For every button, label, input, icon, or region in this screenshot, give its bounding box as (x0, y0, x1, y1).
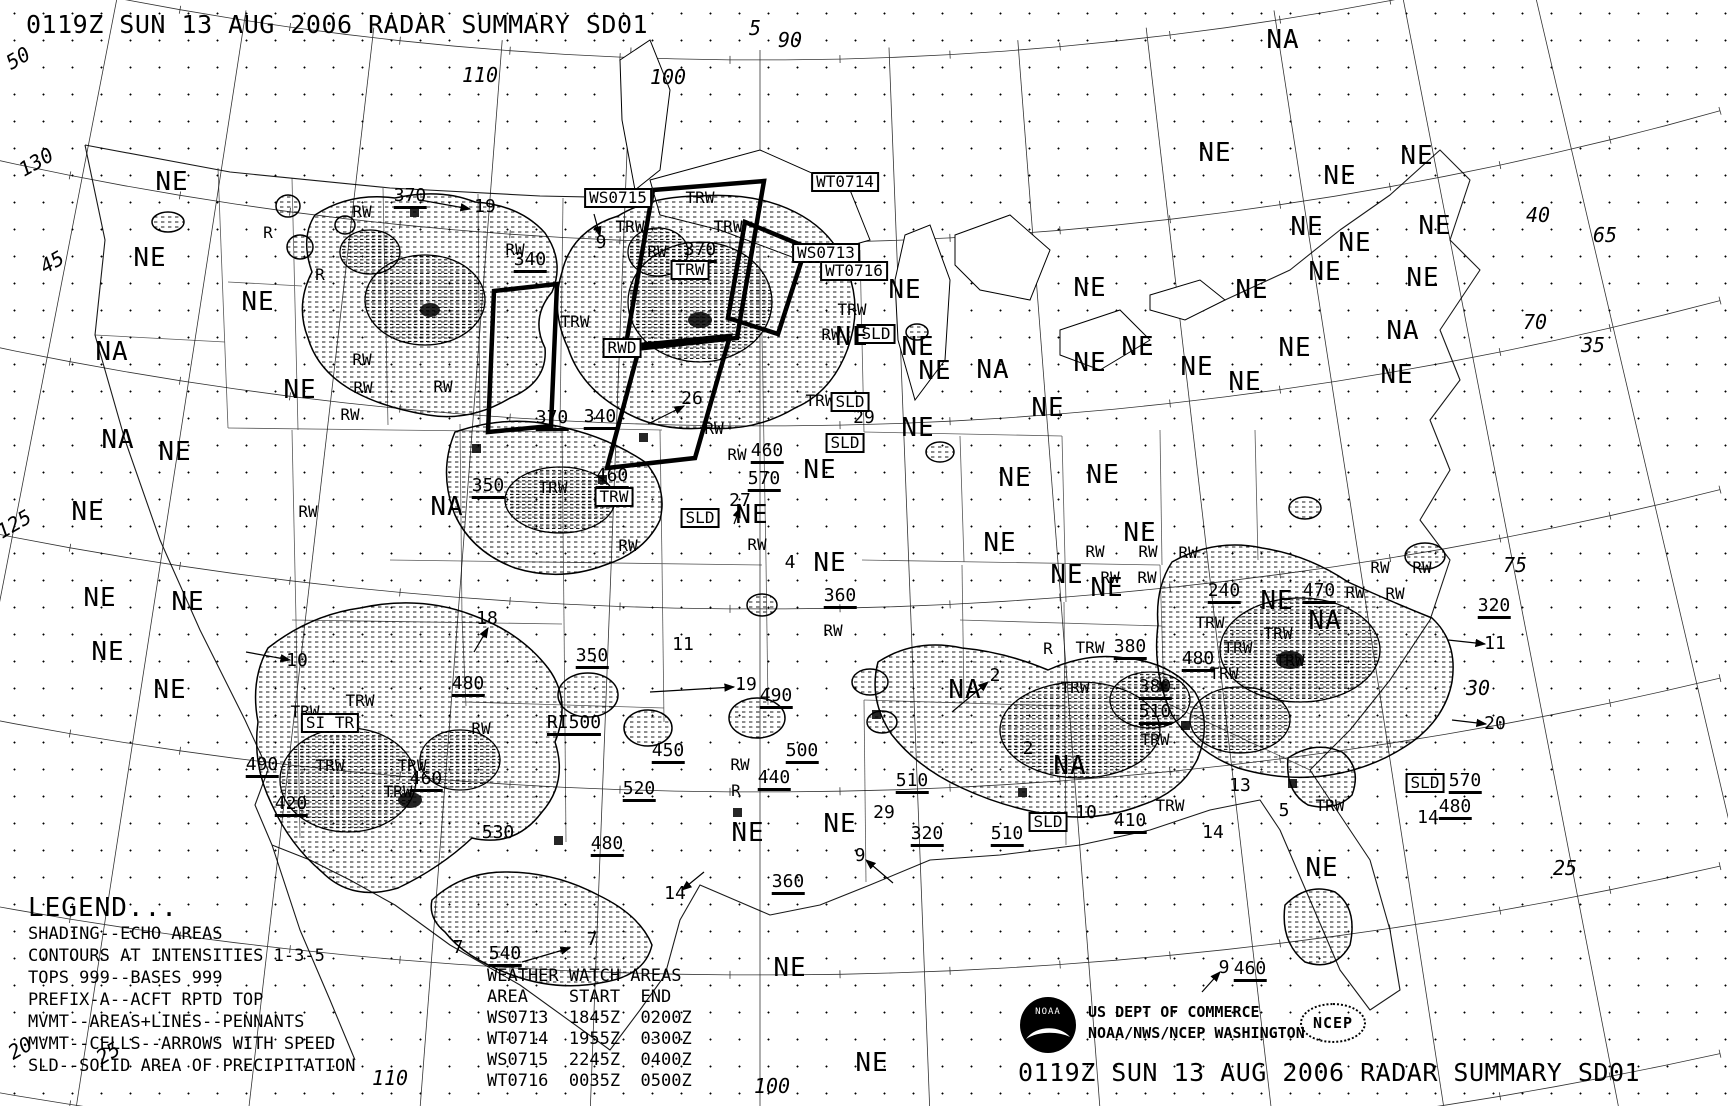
map-label: TRW (1061, 680, 1090, 696)
grid-label: 5 (749, 18, 761, 38)
map-label: RW (353, 380, 372, 396)
map-label: RW (618, 538, 637, 554)
map-label: 240 (1208, 582, 1241, 604)
map-label: TRW (671, 260, 710, 280)
map-label: NA (1266, 27, 1299, 53)
map-label: RW (1412, 560, 1431, 576)
map-label: TRW (1076, 640, 1105, 656)
map-label: NE (773, 955, 806, 981)
grid-label: 110 (462, 65, 498, 85)
map-label: 570 (748, 470, 781, 492)
map-label: NE (155, 169, 188, 195)
map-label: RW (1385, 586, 1404, 602)
map-label: TRW (1224, 640, 1253, 656)
map-label: 10 (1075, 804, 1097, 822)
map-label: NE (823, 811, 856, 837)
map-label: NE (1198, 140, 1231, 166)
map-label: 510 (991, 825, 1024, 847)
map-label: 5 (1279, 802, 1290, 820)
map-label: TRW (1156, 798, 1185, 814)
map-label: 450 (652, 742, 685, 764)
map-label: TRW (838, 302, 867, 318)
map-label: RW (352, 352, 371, 368)
map-label: NE (1323, 163, 1356, 189)
map-label: NE (1228, 369, 1261, 395)
map-label: NE (1380, 362, 1413, 388)
map-label: TRW (1141, 732, 1170, 748)
map-label: NA (948, 677, 981, 703)
map-label: SLD (1029, 812, 1068, 832)
legend-line: SHADING--ECHO AREAS (28, 923, 356, 945)
map-label: 19 (474, 198, 496, 216)
grid-label: 35 (1581, 335, 1605, 355)
map-label: NA (1386, 318, 1419, 344)
map-label: 350 (576, 647, 609, 669)
map-label: RW (647, 244, 666, 260)
map-label: NE (888, 277, 921, 303)
map-label: NA (1308, 608, 1341, 634)
map-label: TRW (616, 219, 645, 235)
legend: LEGEND... SHADING--ECHO AREASCONTOURS AT… (28, 893, 356, 1077)
map-label: RW (704, 421, 723, 437)
map-label: 11 (1484, 635, 1506, 653)
grid-label: 100 (754, 1076, 790, 1096)
grid-label: 75 (1503, 555, 1527, 575)
map-label: TRW (346, 693, 375, 709)
map-label: NE (998, 465, 1031, 491)
ncep-logo: NCEP (1300, 1003, 1366, 1043)
map-label: RW (1085, 544, 1104, 560)
map-label: SLD (1406, 773, 1445, 793)
map-label: 370 (536, 409, 569, 431)
watch-table-row: WS0713 1845Z 0200Z (487, 1008, 692, 1029)
map-label: NE (901, 415, 934, 441)
map-label: NE (71, 499, 104, 525)
map-label: TRW (1264, 626, 1293, 642)
watch-table-row: WS0715 2245Z 0400Z (487, 1050, 692, 1071)
map-label: NE (83, 585, 116, 611)
map-label: NE (283, 377, 316, 403)
legend-line: MVMT--CELLS--ARROWS WITH SPEED (28, 1033, 356, 1055)
map-label: TRW (1196, 615, 1225, 631)
map-label: 380 (1114, 638, 1147, 660)
map-label: 530 (482, 824, 515, 842)
map-label: NE (1090, 575, 1123, 601)
map-label: NE (1121, 334, 1154, 360)
map-label: 460 (410, 770, 443, 792)
map-label: NE (835, 324, 868, 350)
map-label: 29 (873, 804, 895, 822)
map-label: NA (976, 357, 1009, 383)
map-label: NE (1073, 350, 1106, 376)
map-label: 570 (1449, 772, 1482, 794)
map-label: NE (1235, 277, 1268, 303)
map-label: 10 (286, 652, 308, 670)
map-label: NE (1073, 275, 1106, 301)
map-label: RW (433, 379, 452, 395)
map-label: 460 (1234, 960, 1267, 982)
map-label: 9 (596, 234, 607, 252)
map-label: NE (1260, 588, 1293, 614)
agency-line2: NOAA/NWS/NCEP WASHINGTON (1088, 1024, 1305, 1042)
map-label: NE (241, 289, 274, 315)
map-label: RW (340, 407, 359, 423)
map-label: NE (803, 457, 836, 483)
echo-areas (152, 194, 1453, 986)
map-label: RW (747, 537, 766, 553)
map-label: NE (171, 589, 204, 615)
map-label: SLD (681, 508, 720, 528)
map-label: 480 (1439, 798, 1472, 820)
map-label: TRW (1316, 798, 1345, 814)
map-label: TRW (595, 487, 634, 507)
map-label: NE (1418, 213, 1451, 239)
map-label: WS0715 (584, 188, 652, 208)
map-label: NE (91, 639, 124, 665)
legend-line: CONTOURS AT INTENSITIES 1-3-5 (28, 945, 356, 967)
legend-lines: SHADING--ECHO AREASCONTOURS AT INTENSITI… (28, 923, 356, 1077)
map-label: 480 (591, 835, 624, 857)
map-label: 410 (1114, 812, 1147, 834)
map-label: TRW (1276, 653, 1305, 669)
map-label: 19 (735, 676, 757, 694)
map-label: NE (1290, 214, 1323, 240)
map-label: 14 (664, 885, 686, 903)
map-label: NE (1278, 335, 1311, 361)
map-label: 540 (489, 945, 522, 967)
map-label: 13 (1229, 777, 1251, 795)
map-label: TRW (561, 314, 590, 330)
map-label: 520 (623, 780, 656, 802)
legend-line: TOPS 999--BASES 999 (28, 967, 356, 989)
map-label: NE (1180, 354, 1213, 380)
map-label: NE (1123, 520, 1156, 546)
watch-table-row: WT0714 1955Z 0300Z (487, 1029, 692, 1050)
noaa-logo-text: NOAA (1035, 1007, 1061, 1017)
map-label: TRW (1210, 666, 1239, 682)
map-label: TRW (316, 758, 345, 774)
map-label: 480 (452, 675, 485, 697)
map-label: 11 (672, 636, 694, 654)
map-label: 510 (896, 772, 929, 794)
grid-label: 110 (372, 1068, 408, 1088)
map-label: 18 (476, 610, 498, 628)
map-label: NA (430, 494, 463, 520)
map-label: R (1043, 641, 1053, 657)
map-label: 490 (760, 687, 793, 709)
map-label: NE (1086, 462, 1119, 488)
map-label: RW (298, 504, 317, 520)
top-title: 0119Z SUN 13 AUG 2006 RADAR SUMMARY SD01 (26, 10, 648, 39)
map-label: NE (983, 530, 1016, 556)
map-label: R (315, 267, 325, 283)
map-label: TRW (539, 480, 568, 496)
map-label: 4 (785, 554, 796, 572)
grid-label: 40 (1526, 205, 1550, 225)
map-label: RW (1137, 570, 1156, 586)
watch-table-row: WT0716 0035Z 0500Z (487, 1071, 692, 1092)
map-label: NE (158, 439, 191, 465)
map-label: 510 (1139, 703, 1172, 725)
map-label: NA (95, 339, 128, 365)
map-label: RW (1370, 560, 1389, 576)
map-label: 490 (246, 756, 279, 778)
grid-label: 65 (1593, 225, 1617, 245)
map-label: NE (1031, 395, 1064, 421)
map-label: NE (1338, 230, 1371, 256)
map-label: NE (1305, 855, 1338, 881)
map-label: R (731, 783, 741, 799)
map-label: TRW (384, 784, 413, 800)
grid-label: 100 (650, 67, 686, 87)
map-label: 440 (758, 769, 791, 791)
map-label: NA (1053, 753, 1086, 779)
map-label: RI500 (547, 714, 601, 736)
map-label: 380 (1139, 678, 1172, 700)
map-label: 14 (1417, 809, 1439, 827)
map-label: 2 (990, 667, 1001, 685)
legend-line: MVMT--AREAS+LINES--PENNANTS (28, 1011, 356, 1033)
radar-summary-map: 0119Z SUN 13 AUG 2006 RADAR SUMMARY SD01… (0, 0, 1728, 1106)
noaa-logo: NOAA (1020, 997, 1076, 1053)
map-label: RW (471, 721, 490, 737)
watch-table-title: WEATHER WATCH AREAS (487, 966, 692, 987)
legend-line: SLD--SOLID AREA OF PRECIPITATION (28, 1055, 356, 1077)
watch-table-header: AREA START END (487, 987, 692, 1008)
grid-label: 90 (778, 30, 802, 50)
map-label: RW (352, 204, 371, 220)
legend-line: PREFIX-A--ACFT RPTD TOP (28, 989, 356, 1011)
map-label: 470 (1303, 582, 1336, 604)
map-label: WS0713 (792, 243, 860, 263)
map-label: SLD (826, 433, 865, 453)
map-label: RW (823, 623, 842, 639)
map-label: RW (730, 757, 749, 773)
map-label: NE (1050, 562, 1083, 588)
map-label: 29 (853, 409, 875, 427)
map-label: NE (153, 677, 186, 703)
map-label: RWD (603, 338, 642, 358)
map-label: 500 (786, 742, 819, 764)
map-label: NA (101, 427, 134, 453)
map-label: 340 (584, 408, 617, 430)
map-label: 320 (911, 825, 944, 847)
agency-text: US DEPT OF COMMERCE NOAA/NWS/NCEP WASHIN… (1088, 1002, 1305, 1044)
map-label: 2 (1023, 740, 1034, 758)
grid-label: 70 (1523, 312, 1547, 332)
bottom-title: 0119Z SUN 13 AUG 2006 RADAR SUMMARY SD01 (1018, 1058, 1640, 1087)
map-label: 360 (824, 587, 857, 609)
map-label: 20 (1484, 715, 1506, 733)
map-label: WT0714 (811, 172, 879, 192)
map-label: NE (1400, 143, 1433, 169)
map-label: NE (901, 334, 934, 360)
map-label: 9 (1219, 959, 1230, 977)
map-label: RW (1178, 545, 1197, 561)
map-label: 360 (772, 873, 805, 895)
map-label: R (263, 225, 273, 241)
map-label: 27 (729, 492, 751, 510)
map-label: 350 (472, 477, 505, 499)
map-label: NE (133, 245, 166, 271)
map-label: 9 (855, 847, 866, 865)
map-label: RW (1345, 585, 1364, 601)
grid-label: 30 (1466, 678, 1490, 698)
watch-table: WEATHER WATCH AREASAREA START ENDWS0713 … (487, 966, 692, 1092)
seagull-icon (1020, 1023, 1076, 1045)
map-label: NE (855, 1050, 888, 1076)
map-label: SI TR (301, 713, 359, 733)
map-label: 460 (751, 442, 784, 464)
map-label: 340 (514, 251, 547, 273)
map-label: 420 (275, 795, 308, 817)
map-label: 14 (1202, 824, 1224, 842)
map-label: 7 (453, 939, 464, 957)
map-label: 320 (1478, 597, 1511, 619)
map-label: 370 (394, 187, 427, 209)
map-label: NE (813, 550, 846, 576)
map-label: 7 (587, 931, 598, 949)
grid-label: 25 (1553, 858, 1577, 878)
map-label: TRW (714, 219, 743, 235)
agency-line1: US DEPT OF COMMERCE (1088, 1003, 1260, 1021)
map-label: NE (731, 820, 764, 846)
map-label: TRW (686, 190, 715, 206)
map-label: NE (1308, 259, 1341, 285)
map-label: 460 (596, 467, 629, 489)
map-label: 26 (681, 390, 703, 408)
map-label: RW (727, 447, 746, 463)
legend-title: LEGEND... (28, 893, 356, 923)
map-label: WT0716 (820, 261, 888, 281)
map-label: NE (1406, 265, 1439, 291)
